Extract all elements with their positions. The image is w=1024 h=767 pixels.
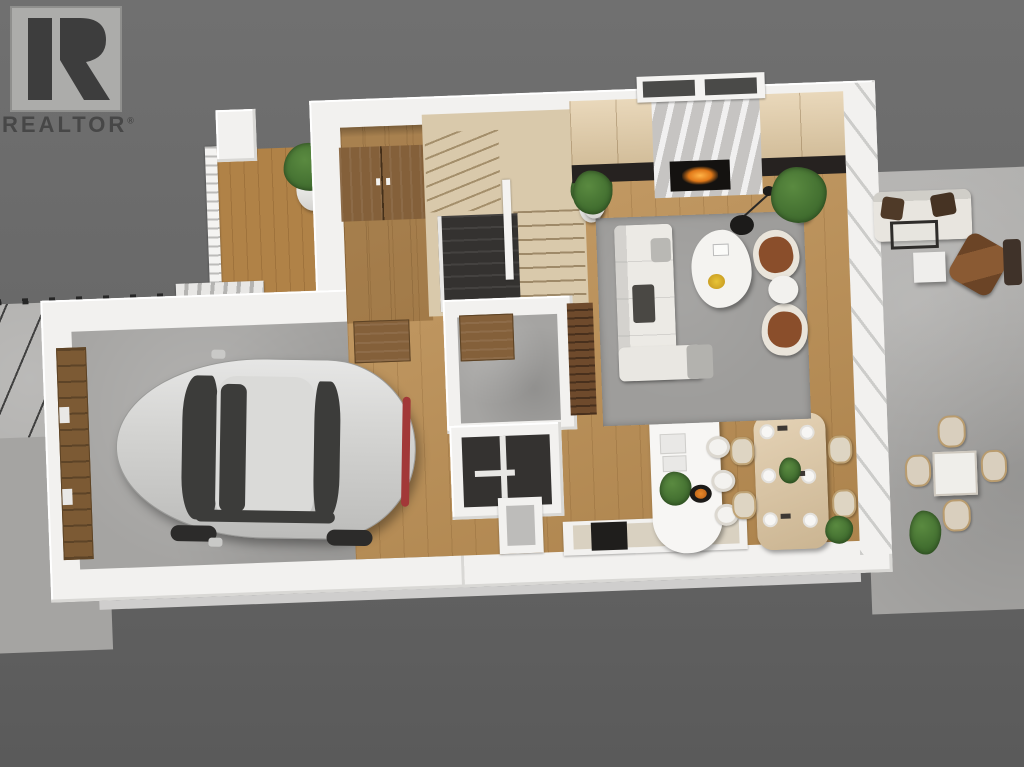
car — [114, 348, 423, 553]
fire-flames — [682, 166, 719, 185]
outdoor-chair-bottom — [942, 499, 971, 532]
closet-doors — [339, 145, 426, 222]
realtor-r-icon — [12, 8, 120, 110]
outdoor-pillow-1 — [880, 196, 905, 221]
car-sunroof — [219, 384, 247, 512]
plan-world — [0, 0, 1024, 767]
pantry-cabinet — [498, 497, 544, 555]
realtor-wordmark: REALTOR® — [2, 112, 142, 138]
rear-window-glass — [643, 80, 696, 98]
island-sink — [660, 433, 687, 454]
sofa-pillow — [650, 238, 671, 263]
car-wheel-rear — [326, 529, 372, 546]
powder-room-fixture — [475, 470, 515, 477]
oranges — [695, 489, 707, 499]
dining-chair-left-1 — [730, 437, 755, 466]
gray-ottoman — [686, 344, 713, 379]
coffee-table-book — [713, 244, 729, 257]
dining-chair-right-2 — [832, 489, 857, 518]
mudroom-door — [459, 314, 515, 362]
island-plant — [659, 471, 692, 506]
rear-window-frame — [636, 72, 765, 103]
dining-table — [753, 412, 830, 551]
realtor-text: REALTOR — [2, 112, 127, 137]
outdoor-chair-top — [937, 415, 966, 448]
car-rear-window — [313, 381, 341, 517]
porch-pillar — [215, 109, 257, 162]
patio-dark-chair — [1003, 239, 1023, 286]
plate-5 — [762, 512, 778, 528]
pantry-inset — [506, 505, 535, 546]
island-sink-2 — [662, 455, 687, 472]
floor-plan-scene: REALTOR® — [0, 0, 1024, 767]
outdoor-side-table — [913, 252, 946, 283]
range-cooktop — [591, 521, 628, 550]
closet-handle-right — [386, 178, 390, 185]
fruit-tray — [689, 484, 712, 503]
staircase — [422, 109, 589, 317]
hall-bench — [567, 303, 597, 416]
sofa-throw — [632, 284, 655, 323]
dining-chair-right-1 — [828, 435, 853, 464]
outdoor-coffee-table — [890, 220, 939, 250]
garage-door-notch-1 — [59, 407, 70, 423]
accent-chair-1-seat — [756, 234, 796, 275]
plate-3 — [761, 468, 777, 484]
car-windshield — [181, 375, 219, 520]
accent-chair-2-seat — [767, 310, 803, 348]
stair-flight-upper — [424, 130, 501, 213]
realtor-logo — [10, 6, 122, 112]
registered-mark: ® — [127, 116, 134, 126]
outdoor-chair-left — [904, 454, 931, 487]
car-taillight — [401, 397, 411, 507]
plate-6 — [803, 512, 819, 528]
coffee-table-flowers — [708, 274, 726, 290]
powder-room-divider — [500, 436, 509, 506]
outdoor-dining-table — [932, 451, 978, 497]
plate-2 — [799, 425, 815, 441]
garage-door-notch-2 — [62, 489, 73, 505]
napkin-1 — [777, 426, 787, 431]
outdoor-chair-right — [980, 450, 1007, 483]
stair-flight-lower — [513, 209, 587, 309]
dining-centerpiece — [779, 457, 802, 484]
closet-handle-left — [376, 178, 380, 185]
plate-1 — [759, 424, 775, 440]
firebox — [670, 159, 731, 191]
car-mirror — [211, 350, 225, 359]
rear-window-glass-2 — [705, 77, 758, 95]
outdoor-pillow-2 — [930, 192, 957, 218]
napkin-3 — [781, 513, 791, 518]
car-mirror-2 — [208, 538, 222, 547]
car-side-windows — [195, 509, 335, 523]
dining-chair-left-2 — [732, 491, 757, 520]
